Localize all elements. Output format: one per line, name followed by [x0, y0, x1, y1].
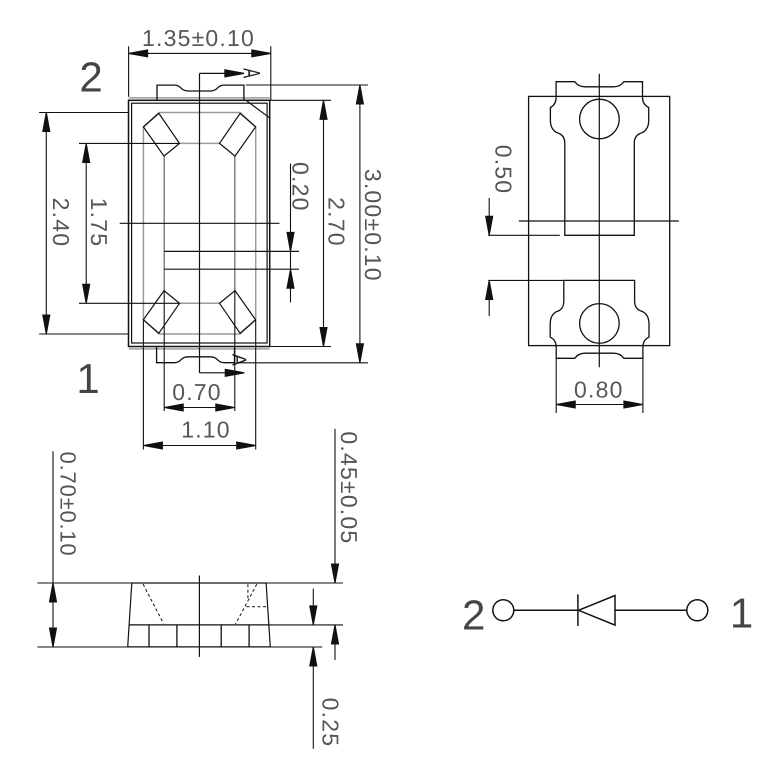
svg-text:3.00±0.10: 3.00±0.10 — [360, 169, 386, 282]
svg-text:2: 2 — [462, 591, 485, 638]
svg-text:0.70±0.10: 0.70±0.10 — [55, 452, 80, 557]
svg-text:2: 2 — [79, 54, 102, 101]
svg-text:0.70: 0.70 — [172, 379, 222, 405]
svg-text:0.50: 0.50 — [491, 145, 517, 195]
svg-text:0.20: 0.20 — [288, 162, 314, 212]
svg-text:1: 1 — [76, 355, 99, 402]
svg-text:0.80: 0.80 — [574, 376, 624, 402]
svg-text:2.70: 2.70 — [323, 197, 349, 247]
svg-text:A: A — [228, 354, 250, 367]
svg-text:0.25: 0.25 — [317, 698, 343, 748]
svg-text:1.35±0.10: 1.35±0.10 — [142, 25, 255, 51]
svg-text:A: A — [237, 68, 264, 78]
svg-text:2.40: 2.40 — [48, 198, 74, 248]
svg-text:1: 1 — [730, 590, 753, 637]
svg-text:1.10: 1.10 — [181, 417, 231, 443]
svg-text:0.45±0.05: 0.45±0.05 — [336, 431, 362, 544]
svg-text:1.75: 1.75 — [86, 198, 112, 248]
